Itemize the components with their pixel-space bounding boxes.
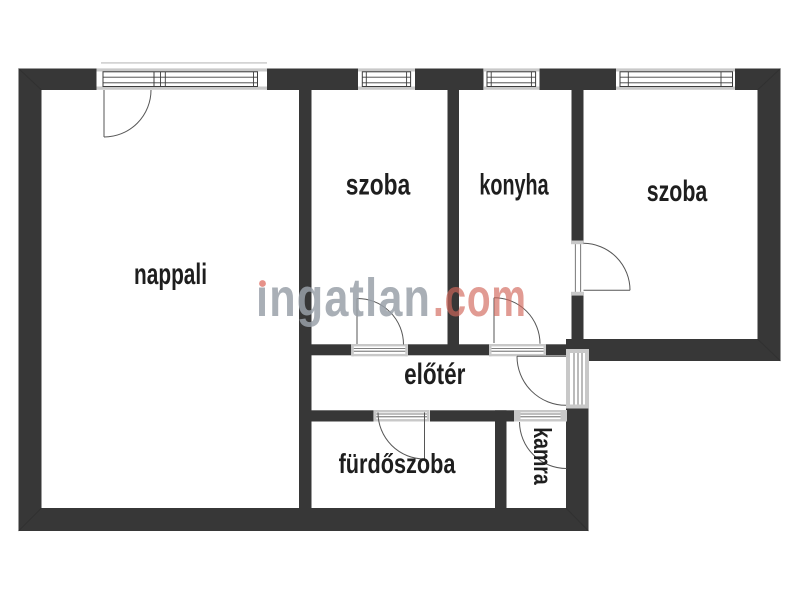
svg-text:szoba: szoba	[647, 173, 708, 208]
svg-text:ıngatlan: ıngatlan	[256, 269, 431, 329]
svg-text:szoba: szoba	[346, 167, 411, 201]
svg-text:nappali: nappali	[134, 258, 207, 291]
svg-text:fürdőszoba: fürdőszoba	[339, 448, 457, 479]
svg-text:kamra: kamra	[528, 427, 556, 485]
svg-text:.com: .com	[433, 267, 527, 328]
svg-text:előtér: előtér	[404, 357, 465, 391]
svg-text:konyha: konyha	[479, 169, 549, 202]
